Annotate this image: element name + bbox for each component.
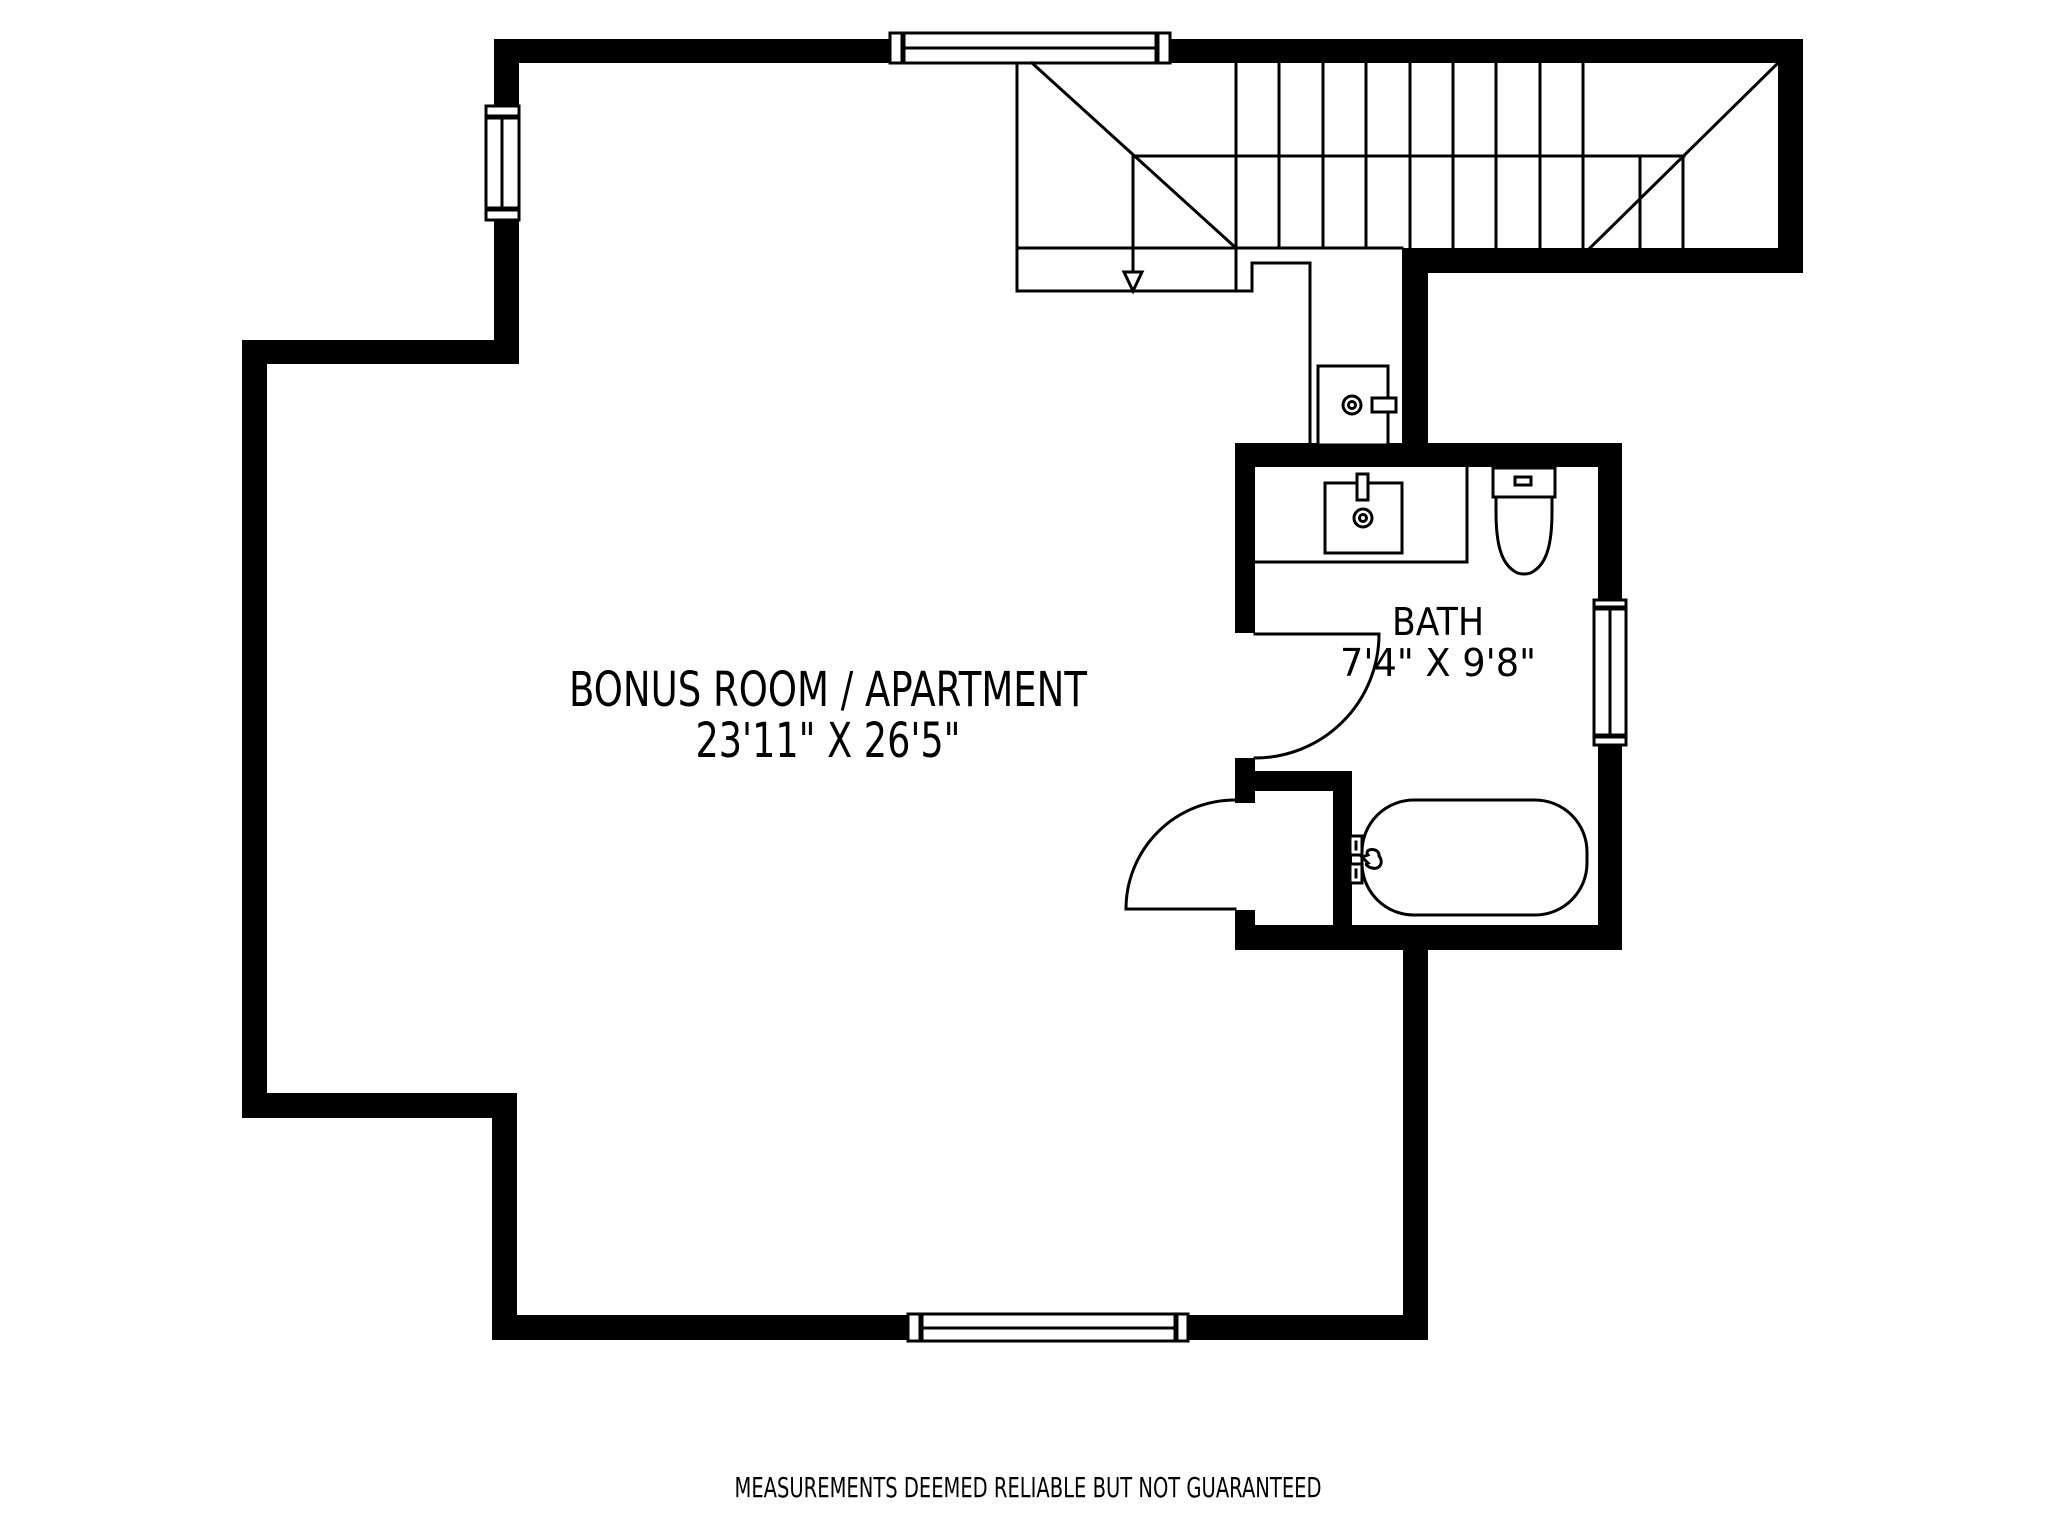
disclaimer-text: MEASUREMENTS DEEMED RELIABLE BUT NOT GUA…: [735, 1471, 1322, 1504]
wall-segment: [1778, 39, 1803, 273]
bath-label: BATH: [1392, 600, 1484, 644]
window-top: [890, 33, 1170, 63]
vanity-faucet: [1357, 474, 1368, 500]
stairs-down-arrow-icon: [1124, 156, 1142, 291]
wall-segment: [494, 39, 519, 106]
toilet-bowl: [1496, 497, 1552, 574]
bonus-room-label: BONUS ROOM / APARTMENT: [569, 662, 1088, 718]
wall-segment: [1402, 248, 1803, 273]
arrow-head: [1124, 272, 1142, 291]
vanity: [1255, 467, 1467, 562]
closet-door: [1126, 800, 1235, 909]
wall-segment: [242, 340, 267, 1118]
window-bottom: [908, 1314, 1188, 1341]
utility-sink: [1318, 366, 1396, 445]
utility-sink-handle: [1372, 398, 1396, 412]
wall-segment: [494, 39, 890, 63]
floor-plan: BONUS ROOM / APARTMENT 23'11" X 26'5" BA…: [0, 0, 2048, 1536]
utility-sink-drain: [1349, 402, 1356, 409]
wall-segment: [1403, 950, 1428, 1340]
wall-segment: [242, 340, 516, 364]
toilet-flush-button: [1515, 477, 1531, 485]
wall-segment: [1235, 925, 1622, 950]
window-left: [486, 106, 519, 220]
wall-segment: [1170, 39, 1803, 63]
wall-segment: [492, 1093, 517, 1340]
wall-segment: [492, 1315, 908, 1340]
wall-segment: [1188, 1315, 1428, 1340]
wall-segment: [1598, 745, 1622, 950]
toilet: [1493, 468, 1555, 574]
wall-segment: [1402, 248, 1428, 467]
vanity-sink-drain: [1360, 515, 1367, 522]
bath-dimensions: 7'4" X 9'8": [1340, 641, 1536, 685]
wall-segment: [1235, 443, 1622, 467]
bathtub-rim: [1362, 800, 1587, 915]
wall-segment: [1235, 443, 1255, 633]
door-swing-arc: [1126, 800, 1235, 909]
bonus-room-dimensions: 23'11" X 26'5": [696, 713, 961, 769]
bathtub: [1350, 800, 1587, 915]
wall-segment: [242, 1093, 517, 1118]
labels: BONUS ROOM / APARTMENT 23'11" X 26'5" BA…: [569, 600, 1536, 1504]
window-bath: [1594, 600, 1626, 745]
floor-plan-page: BONUS ROOM / APARTMENT 23'11" X 26'5" BA…: [0, 0, 2048, 1536]
wall-segment: [1235, 910, 1255, 925]
